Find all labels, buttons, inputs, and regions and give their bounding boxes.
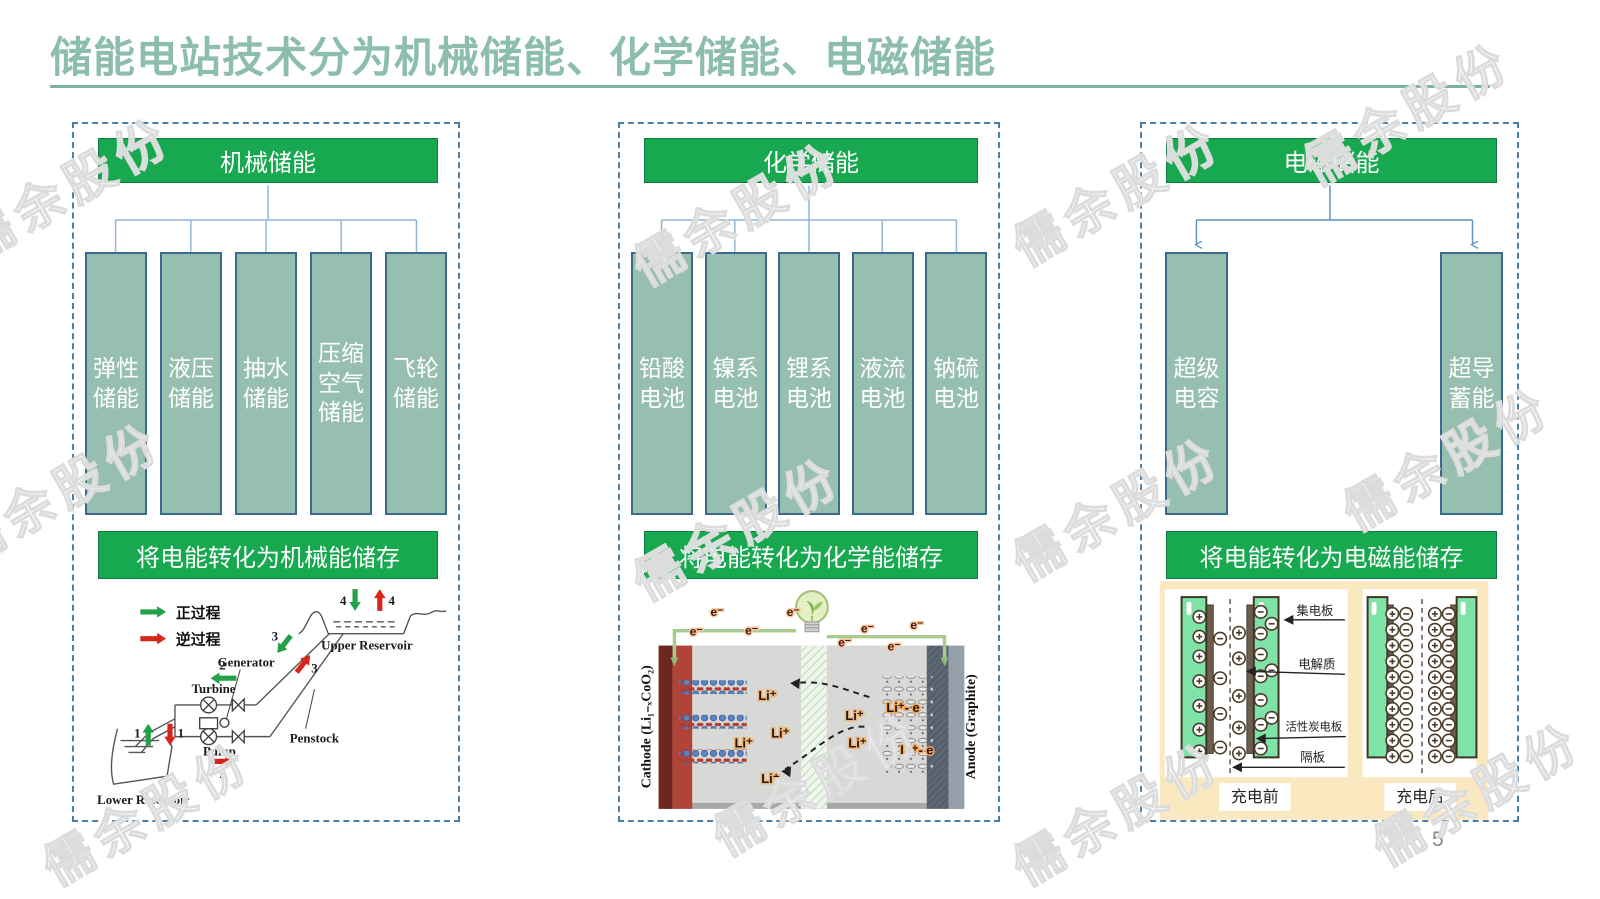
forward-arrow-icon (140, 606, 166, 617)
item-box-elastic: 弹性储能 (85, 252, 147, 515)
electron-label: e⁻ (838, 636, 851, 650)
light-bulb-icon (796, 591, 828, 632)
step-number: 4 (340, 594, 347, 608)
step-number: 2 (219, 767, 225, 781)
pump-label: Pump (203, 744, 236, 758)
turbine-label: Turbine (192, 682, 236, 696)
electron-label: e⁻ (888, 640, 901, 654)
panel-banner-chemical: 将电能转化为化学能储存 (644, 531, 978, 579)
connector-lines (620, 183, 998, 252)
item-boxes-row: 弹性储能 液压储能 抽水储能 压缩空气储能 飞轮储能 (85, 252, 447, 515)
connector-lines (1142, 183, 1517, 252)
electron-label: e⁻ (745, 624, 758, 638)
panel-header-mechanical: 机械储能 (98, 138, 438, 183)
lithium-ion-label: Li⁺ (758, 688, 776, 703)
title-underline: 储能电站技术分为机械储能、化学储能、电磁储能 (50, 36, 1490, 88)
page-number: 5 (1432, 828, 1444, 852)
item-box-nickel: 镍系电池 (705, 252, 767, 515)
step-number: 1 (178, 727, 184, 741)
after-charge-caption: 充电后 (1396, 788, 1444, 806)
legend-reverse-label: 逆过程 (176, 631, 221, 649)
page-title: 储能电站技术分为机械储能、化学储能、电磁储能 (50, 36, 1490, 80)
reverse-arrow-icon (140, 633, 166, 644)
panel-header-chemical: 化学储能 (644, 138, 978, 183)
lithium-battery-diagram: e⁻ e⁻ e⁻ e⁻ e⁻ e⁻ e⁻ e⁻ Li⁺ Li⁺ Li⁺ Li⁺ … (620, 579, 998, 822)
activated-carbon-label: 活性炭电板 (1285, 720, 1342, 734)
pumped-hydro-diagram: 正过程 逆过程 (74, 579, 458, 822)
penstock-label: Penstock (290, 732, 340, 746)
up-arrow-icon (374, 589, 385, 611)
lithium-ion-label: Li⁺ (771, 726, 789, 741)
item-boxes-row: 铅酸电池 镍系电池 锂系电池 液流电池 钠硫电池 (631, 252, 987, 515)
panel-banner-mechanical: 将电能转化为机械能储存 (98, 531, 438, 579)
panel-chemical-storage: 化学储能 铅酸电池 镍系电池 锂系电池 液流电池 钠硫电池 将电能转化为化学能储… (618, 122, 1000, 822)
item-box-lithium: 锂系电池 (778, 252, 840, 515)
supercapacitor-diagram: 集电板 电解质 活性炭电板 隔板 (1142, 579, 1517, 822)
electron-label: e⁻ (711, 605, 724, 619)
item-boxes-row: 超级电容 超导蓄能 (1165, 252, 1503, 515)
item-box-pumped-hydro: 抽水储能 (235, 252, 297, 515)
step-number: 1 (134, 727, 140, 741)
cathode-label: Cathode (Li₁₋ₓCoO₂) (639, 665, 655, 788)
panel-banner-electromagnetic: 将电能转化为电磁能储存 (1166, 531, 1497, 579)
penstock-leader-line (306, 689, 315, 729)
up-arrow-icon (142, 724, 153, 746)
step-number: 4 (388, 594, 395, 608)
panel-electromagnetic-storage: 电磁储能 超级电容 超导蓄能 将电能转化为电磁能储存 (1140, 122, 1519, 822)
step-number: 3 (311, 661, 317, 675)
generator-label: Generator (218, 655, 275, 669)
before-charge-caption: 充电前 (1231, 788, 1279, 806)
item-box-sodium-sulfur: 钠硫电池 (925, 252, 987, 515)
collector-plate-label: 集电板 (1296, 603, 1333, 618)
upper-reservoir-label: Upper Reservoir (321, 639, 413, 653)
item-box-superconducting: 超导蓄能 (1440, 252, 1503, 515)
lithium-ion-label: Li⁺ (848, 736, 866, 751)
lithium-ion-label: Li⁺ (845, 708, 863, 723)
panel-header-electromagnetic: 电磁储能 (1166, 138, 1497, 183)
panel-mechanical-storage: 机械储能 弹性储能 液压储能 抽水储能 压缩空气储能 飞轮储能 将电能转化为机械… (72, 122, 460, 822)
lower-reservoir-label: Lower Reservoir (97, 793, 190, 807)
lithium-electron-label: Li⁺- e (900, 742, 933, 757)
electrolyte-label: 电解质 (1298, 657, 1335, 671)
connector-lines (74, 183, 458, 252)
slide: 储能电站技术分为机械储能、化学储能、电磁储能 机械储能 弹性储能 液压储能 抽水… (0, 0, 1600, 899)
step-number: 3 (272, 630, 278, 644)
item-box-supercapacitor: 超级电容 (1165, 252, 1228, 515)
separator-label: 隔板 (1300, 750, 1325, 764)
anode-label: Anode (Graphite) (963, 674, 979, 779)
electron-label: e⁻ (787, 605, 800, 619)
lithium-ion-label: Li⁺ (735, 736, 753, 751)
item-box-compressed-air: 压缩空气储能 (310, 252, 372, 515)
item-box-hydraulic: 液压储能 (160, 252, 222, 515)
lithium-ion-label: Li⁺ (761, 771, 779, 786)
turbine-generator-pump-icons (200, 697, 245, 745)
item-box-flow: 液流电池 (852, 252, 914, 515)
item-box-lead-acid: 铅酸电池 (631, 252, 693, 515)
lithium-electron-label: Li⁺- e (886, 700, 919, 715)
down-arrow-icon (349, 589, 360, 611)
legend-forward-label: 正过程 (176, 604, 221, 622)
electron-label: e⁻ (690, 625, 703, 639)
electron-label: e⁻ (861, 622, 874, 636)
electron-label: e⁻ (910, 618, 923, 632)
item-box-flywheel: 飞轮储能 (385, 252, 447, 515)
battery-cell (659, 646, 965, 809)
